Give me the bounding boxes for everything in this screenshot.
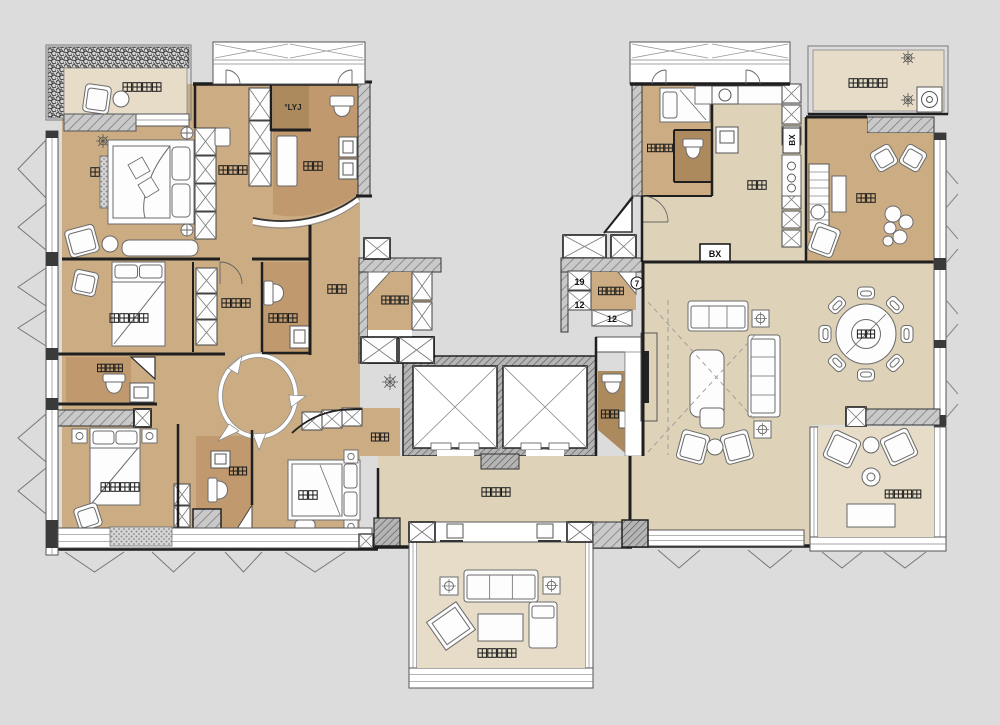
svg-text:19: 19 [574, 277, 584, 287]
svg-text:BX: BX [788, 134, 797, 146]
svg-text:BX: BX [709, 249, 722, 259]
svg-text:7: 7 [635, 280, 640, 289]
svg-text:°LYJ: °LYJ [284, 103, 301, 112]
svg-text:12: 12 [607, 314, 617, 324]
svg-text:12: 12 [574, 300, 584, 310]
